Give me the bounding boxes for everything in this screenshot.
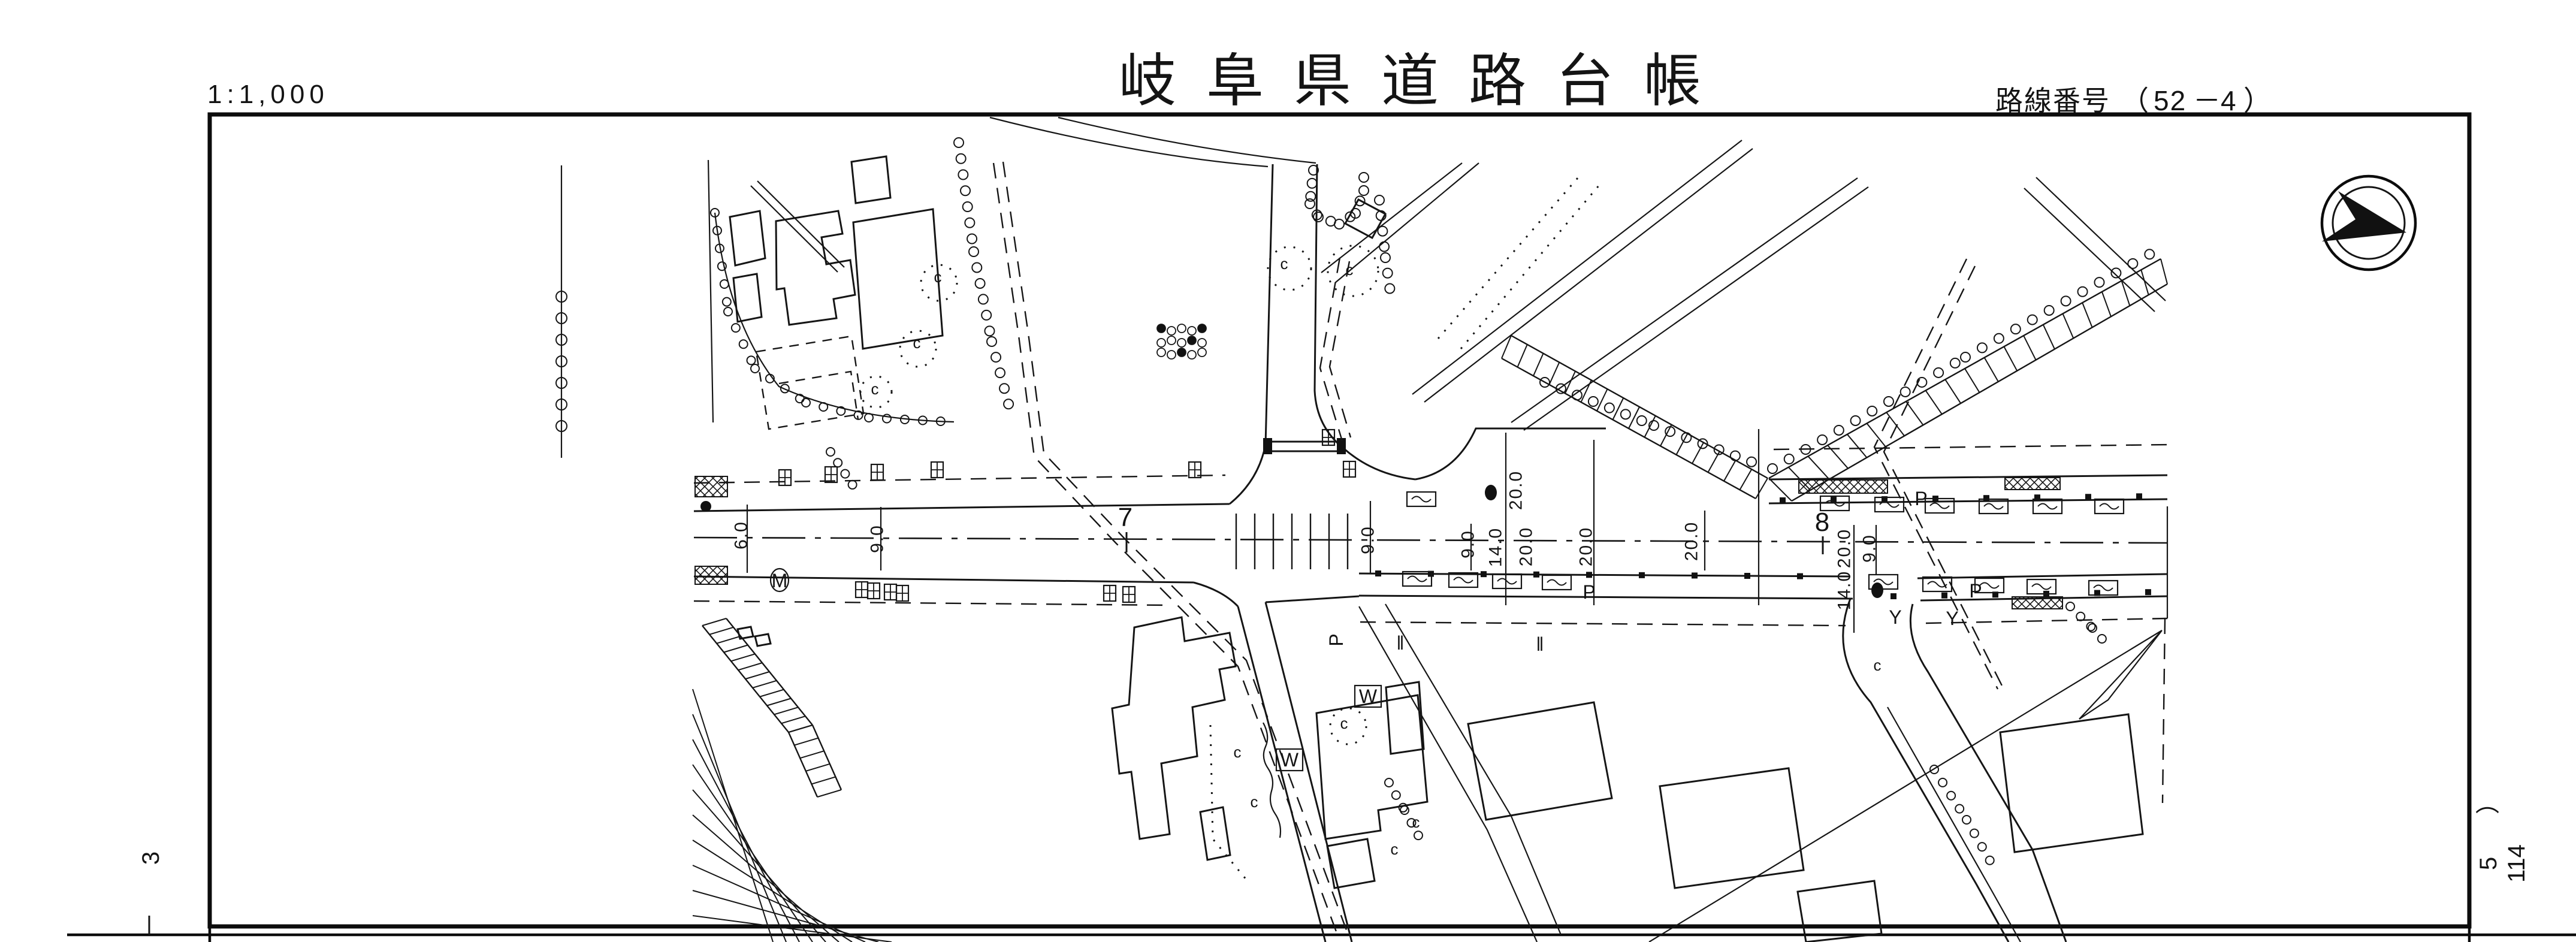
tree-symbol: c [1234, 743, 1242, 761]
pole-letter: P [1325, 633, 1347, 646]
valve-letter: Y [1946, 608, 1958, 629]
left-sheet-number: 3 [138, 852, 164, 865]
road-ledger-sheet: 1:1,000 岐阜県道路台帳 路線番号 （ 52 － 4 ） 3 ） 5 11… [0, 0, 2576, 942]
dimension-label: 20.0 [1517, 527, 1536, 566]
tree-symbol: c [1251, 793, 1258, 811]
route-number: 路線番号 （ 52 － 4 ） [1995, 85, 2272, 116]
paddy-symbol: ‖ [1396, 632, 1404, 654]
right-sheet-paren: ） [2475, 790, 2502, 814]
tree-symbol: c [1874, 656, 1882, 674]
vegetation [860, 246, 1378, 880]
dimension-label: 9.0 [1358, 526, 1378, 554]
map-labels: 7 8 6.0 9.0 9.0 9.0 14.0 20.0 20.0 20.0 … [732, 255, 1982, 858]
dimension-label: 20.0 [1682, 521, 1702, 561]
well-letter: W [1281, 749, 1299, 771]
route-prefix: 路線番号 [1995, 85, 2110, 116]
dimension-label: 20.0 [1506, 470, 1526, 510]
southeast-boundary [1649, 630, 2162, 942]
dimension-label: 20.0 [1577, 527, 1596, 566]
route-branch-number: 4 [2221, 85, 2237, 116]
road-centerline [694, 538, 2167, 543]
tree-symbol: c [1391, 840, 1399, 858]
pole-letter: P [1583, 581, 1595, 603]
manhole-letter: M [772, 570, 788, 591]
right-sheet-digit: 5 [2475, 857, 2502, 870]
main-road [694, 163, 2167, 942]
right-sheet-number: 114 [2503, 844, 2530, 883]
buildings [730, 156, 2143, 942]
dimension-label: 14.0 [1486, 527, 1506, 567]
dimension-label: 20.0 [1835, 529, 1855, 568]
tree-symbol: c [871, 380, 879, 398]
dimension-label: 6.0 [732, 521, 751, 549]
route-paren-open: （ [2121, 85, 2150, 116]
route-hyphen: － [2193, 85, 2222, 116]
tree-symbol: c [1340, 714, 1348, 732]
map-canvas: 1:1,000 岐阜県道路台帳 路線番号 （ 52 － 4 ） 3 ） 5 11… [0, 0, 2576, 942]
dimension-label: 9.0 [1860, 534, 1880, 563]
tree-symbol: c [934, 268, 942, 286]
north-arrow-icon [2322, 176, 2415, 270]
scale-label: 1:1,000 [207, 80, 329, 109]
dimension-label: 9.0 [868, 524, 887, 553]
valve-letter: Y [1889, 606, 1901, 628]
paddy-symbol: ‖ [1536, 633, 1544, 655]
tree-symbol: c [1281, 255, 1288, 273]
well-letter: W [1359, 686, 1378, 707]
dimension-label: 14.0 [1835, 570, 1855, 610]
station-label: 7 [1118, 503, 1133, 532]
northeast-roads [1412, 140, 2166, 430]
station-label: 8 [1815, 508, 1829, 537]
tree-symbol: c [1346, 261, 1354, 279]
header: 1:1,000 岐阜県道路台帳 路線番号 （ 52 － 4 ） [207, 49, 2272, 116]
dimension-label: 9.0 [1458, 530, 1478, 558]
dimension-lines [747, 429, 1876, 633]
map-drawing: 7 8 6.0 9.0 9.0 9.0 14.0 20.0 20.0 20.0 … [556, 117, 2167, 942]
margin-annotations: 3 ） 5 114 [138, 790, 2530, 935]
route-main-number: 52 [2154, 85, 2187, 116]
page-title: 岐阜県道路台帳 [1119, 49, 1731, 113]
route-paren-close: ） [2243, 85, 2272, 116]
sheet-frame [67, 114, 2576, 942]
tree-symbol: c [913, 334, 921, 352]
